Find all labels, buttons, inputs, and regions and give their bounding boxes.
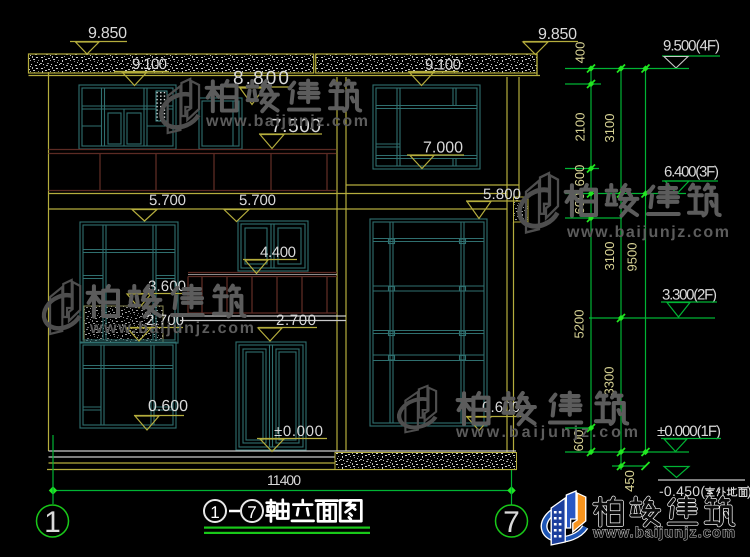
svg-text:www.baijunjz.com: www.baijunjz.com [592, 525, 735, 541]
svg-text:1: 1 [210, 503, 219, 522]
svg-text:3100: 3100 [602, 114, 617, 143]
svg-text:9.100: 9.100 [132, 56, 167, 73]
svg-text:7.000: 7.000 [423, 140, 463, 157]
svg-text:9500: 9500 [625, 243, 640, 272]
svg-text:±0.000(1F): ±0.000(1F) [657, 423, 721, 440]
svg-text:5.700: 5.700 [239, 192, 276, 209]
svg-text:4.400: 4.400 [260, 244, 296, 261]
svg-text:0.600: 0.600 [148, 398, 188, 415]
svg-text:450: 450 [622, 470, 637, 492]
svg-text:2100: 2100 [573, 113, 588, 142]
svg-text:11400: 11400 [267, 472, 301, 488]
svg-text:5.700: 5.700 [149, 192, 186, 209]
svg-text:600: 600 [572, 165, 587, 187]
svg-text:7: 7 [503, 506, 520, 539]
svg-text:9.850: 9.850 [538, 26, 577, 43]
svg-text:1: 1 [44, 506, 61, 539]
svg-text:-0.450(: -0.450( [659, 483, 705, 499]
svg-text:9.850: 9.850 [88, 25, 127, 42]
svg-text:7: 7 [247, 503, 256, 522]
svg-text:9.500(4F): 9.500(4F) [663, 38, 720, 55]
svg-text:3.300(2F): 3.300(2F) [662, 287, 717, 304]
svg-text:400: 400 [573, 42, 588, 64]
svg-text:5200: 5200 [572, 310, 587, 339]
svg-text:±0.000: ±0.000 [274, 423, 323, 440]
svg-text:3100: 3100 [602, 242, 617, 271]
svg-text:6.400(3F): 6.400(3F) [664, 164, 719, 181]
svg-text:2.700: 2.700 [276, 312, 316, 329]
